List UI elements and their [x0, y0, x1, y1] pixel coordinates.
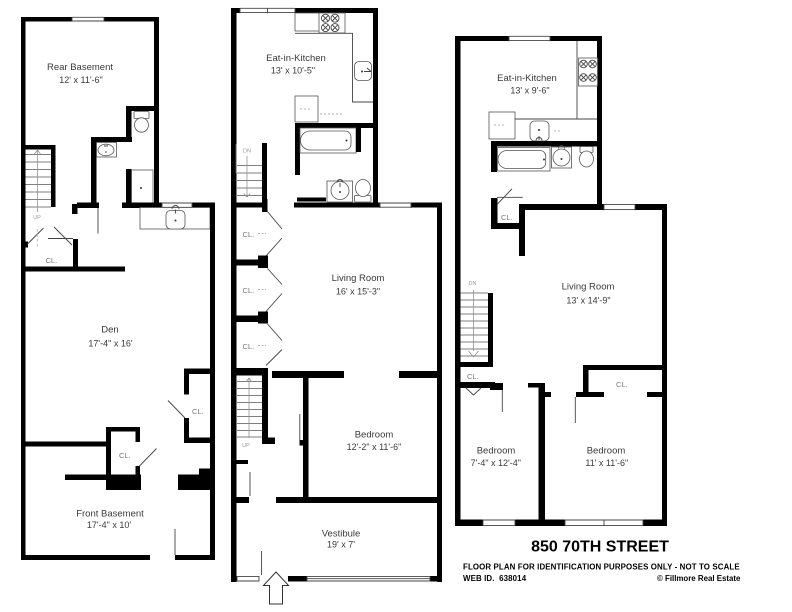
svg-text:Den: Den [101, 325, 118, 336]
svg-text:Front Basement: Front Basement [76, 509, 144, 520]
svg-text:13' x 10'-5": 13' x 10'-5" [271, 66, 315, 76]
svg-text:Living Room: Living Room [332, 273, 385, 284]
svg-text:12' x 11'-6": 12' x 11'-6" [59, 75, 103, 85]
svg-text:Eat-in-Kitchen: Eat-in-Kitchen [266, 53, 326, 64]
svg-text:DN: DN [243, 149, 251, 155]
svg-text:CL.: CL. [243, 230, 255, 239]
svg-text:Living Room: Living Room [562, 282, 615, 293]
svg-text:13' x 9'-6": 13' x 9'-6" [510, 86, 549, 96]
svg-text:Bedroom: Bedroom [355, 430, 394, 441]
svg-text:WEB ID. 638014: WEB ID. 638014 [463, 574, 527, 583]
svg-text:CL.: CL. [467, 372, 479, 381]
svg-text:Rear Basement: Rear Basement [47, 62, 113, 73]
svg-text:Bedroom: Bedroom [587, 446, 626, 457]
svg-text:17'-4" x 16': 17'-4" x 16' [88, 339, 132, 349]
svg-text:13' x 14'-9": 13' x 14'-9" [566, 296, 610, 306]
svg-text:UP: UP [242, 443, 250, 449]
svg-text:Bedroom: Bedroom [477, 446, 516, 457]
svg-text:Vestibule: Vestibule [322, 528, 361, 539]
svg-text:12'-2" x 11'-6": 12'-2" x 11'-6" [347, 442, 402, 452]
svg-text:DN: DN [469, 281, 477, 287]
svg-text:16' x 15'-3": 16' x 15'-3" [336, 287, 380, 297]
svg-text:CL.: CL. [616, 380, 628, 389]
svg-text:CL.: CL. [192, 407, 204, 416]
svg-text:850 70TH STREET: 850 70TH STREET [531, 539, 669, 556]
svg-text:CL.: CL. [243, 342, 255, 351]
svg-text:Eat-in-Kitchen: Eat-in-Kitchen [497, 73, 557, 84]
svg-text:UP: UP [33, 215, 41, 221]
svg-text:FLOOR PLAN FOR IDENTIFICATION: FLOOR PLAN FOR IDENTIFICATION PURPOSES O… [463, 562, 740, 571]
svg-text:CL.: CL. [243, 286, 255, 295]
svg-text:11' x 11'-6": 11' x 11'-6" [585, 458, 628, 468]
svg-text:© Fillmore Real Estate: © Fillmore Real Estate [657, 574, 741, 583]
svg-text:CL.: CL. [501, 213, 513, 222]
svg-text:CL.: CL. [119, 451, 131, 460]
svg-text:7'-4" x 12'-4": 7'-4" x 12'-4" [471, 458, 521, 468]
svg-text:CL.: CL. [46, 256, 58, 265]
svg-text:19' x 7': 19' x 7' [327, 540, 355, 550]
svg-text:17'-4" x 10': 17'-4" x 10' [87, 520, 131, 530]
